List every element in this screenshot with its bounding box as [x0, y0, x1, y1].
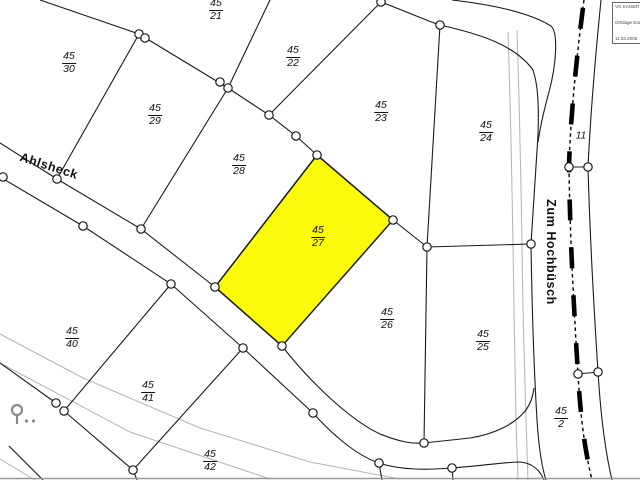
boundary-point [224, 84, 232, 92]
map-info-box: VG KAISEROrtslage Dorf11.03.2008 [612, 2, 640, 44]
boundary-point [309, 409, 317, 417]
boundary-point [292, 132, 300, 140]
boundary-point [377, 0, 385, 6]
house-number-label: 11 [576, 131, 586, 142]
railway-boundary-line [569, 0, 592, 480]
boundary-point [137, 225, 145, 233]
boundary-point [211, 283, 219, 291]
boundary-point [375, 459, 383, 467]
info-box-line: VG KAISER [615, 5, 640, 10]
boundary-point [52, 399, 60, 407]
boundary-point [129, 466, 137, 474]
boundary-point [0, 173, 7, 181]
map-viewport: 4521453045224529452345244528452745264525… [0, 0, 640, 480]
boundary-point [527, 240, 535, 248]
boundary-point [167, 280, 175, 288]
boundary-point [574, 370, 582, 378]
boundary-point [565, 163, 573, 171]
boundary-point [389, 216, 397, 224]
boundary-point [594, 368, 602, 376]
boundary-point [313, 151, 321, 159]
boundary-point [584, 163, 592, 171]
boundary-point [420, 439, 428, 447]
boundary-point [423, 243, 431, 251]
info-box-line: Ortslage Dorf [615, 21, 640, 26]
boundary-point [448, 464, 456, 472]
boundary-point [141, 34, 149, 42]
selected-parcel[interactable] [215, 155, 393, 346]
boundary-point [265, 111, 273, 119]
boundary-point [79, 222, 87, 230]
boundary-point [60, 407, 68, 415]
info-box-line: 11.03.2008 [615, 37, 640, 42]
boundary-point [278, 342, 286, 350]
utility-symbol-icon [12, 405, 35, 424]
street-label-zum-hochbuesch: Zum Hochbüsch [544, 199, 558, 305]
boundary-point [239, 344, 247, 352]
boundary-point [436, 21, 444, 29]
boundary-point [216, 78, 224, 86]
